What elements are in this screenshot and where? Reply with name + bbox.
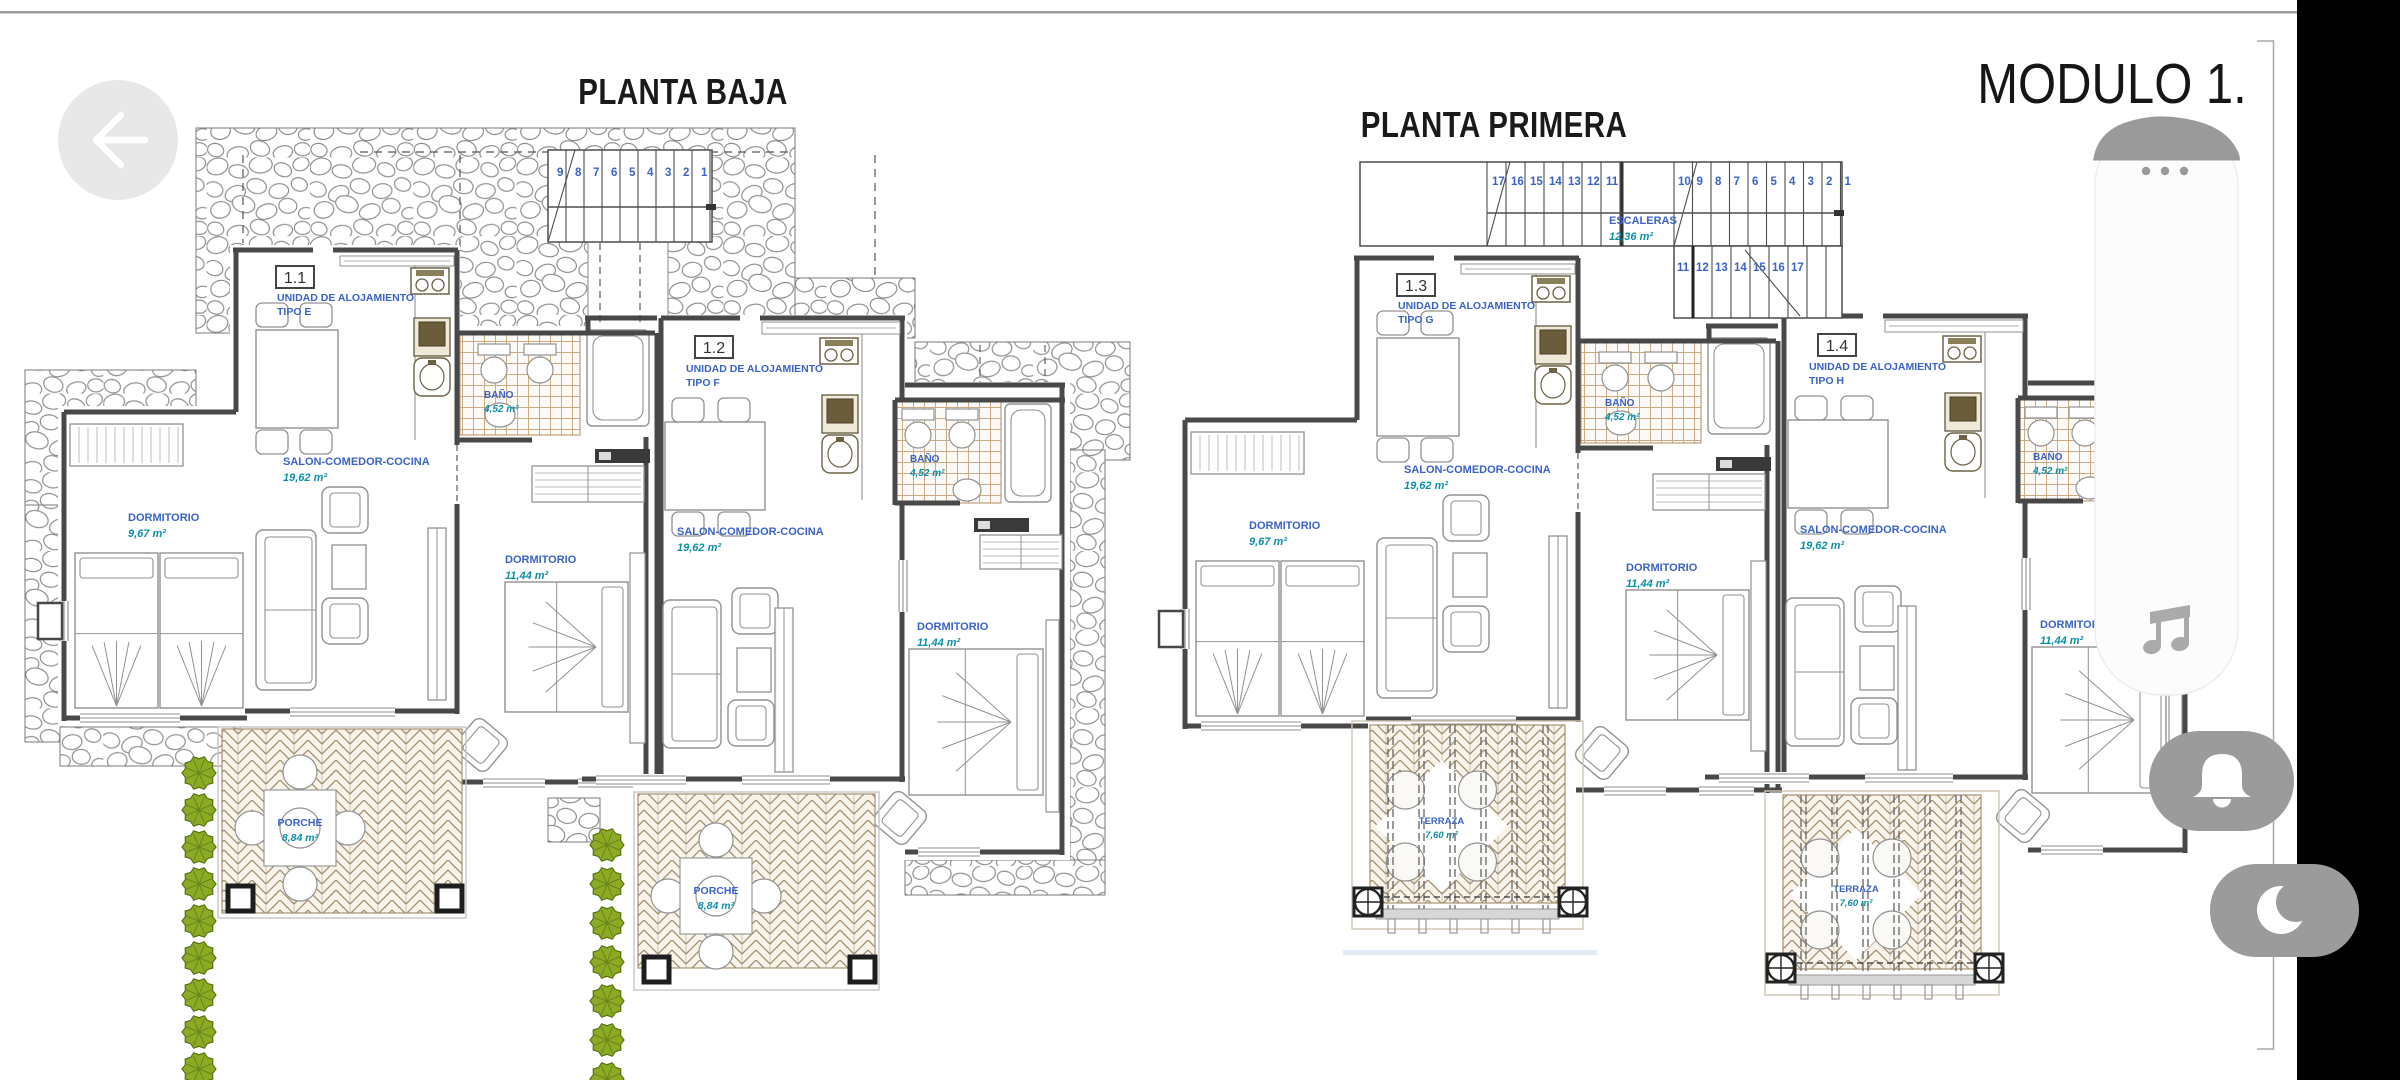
svg-text:1.4: 1.4 [1826,338,1848,355]
svg-text:6: 6 [611,167,617,179]
svg-text:BAÑO: BAÑO [910,452,940,465]
svg-text:4: 4 [1789,176,1796,188]
svg-text:SALON-COMEDOR-COCINA: SALON-COMEDOR-COCINA [677,526,824,538]
svg-text:DORMITORIO: DORMITORIO [1249,520,1321,532]
svg-text:8,84 m²: 8,84 m² [282,832,319,844]
svg-text:2: 2 [683,167,689,179]
svg-text:15: 15 [1753,262,1766,274]
svg-text:3: 3 [1808,176,1814,188]
svg-text:8,84 m²: 8,84 m² [698,900,735,912]
svg-text:UNIDAD DE ALOJAMIENTO: UNIDAD DE ALOJAMIENTO [1398,300,1535,312]
svg-text:11,44 m²: 11,44 m² [1626,578,1670,590]
svg-text:SALON-COMEDOR-COCINA: SALON-COMEDOR-COCINA [283,456,430,468]
svg-text:19,62 m²: 19,62 m² [1404,480,1448,492]
svg-text:19,62 m²: 19,62 m² [283,472,327,484]
svg-text:BAÑO: BAÑO [1605,396,1635,409]
svg-text:12: 12 [1696,262,1709,274]
svg-text:5: 5 [1771,176,1778,188]
svg-text:12: 12 [1587,176,1600,188]
svg-text:19,62 m²: 19,62 m² [677,542,721,554]
svg-text:8: 8 [1715,176,1722,188]
svg-text:1: 1 [1845,176,1852,188]
svg-text:8: 8 [575,167,582,179]
svg-text:14: 14 [1734,262,1747,274]
svg-text:11: 11 [1606,176,1619,188]
svg-text:PLANTA PRIMERA: PLANTA PRIMERA [1361,104,1627,144]
svg-text:11,44 m²: 11,44 m² [2040,635,2084,647]
svg-text:1.1: 1.1 [284,270,306,287]
svg-text:9: 9 [1697,176,1703,188]
svg-text:UNIDAD DE ALOJAMIENTO: UNIDAD DE ALOJAMIENTO [277,292,414,304]
svg-text:ESCALERAS: ESCALERAS [1609,215,1677,227]
svg-text:1.2: 1.2 [703,340,725,357]
svg-text:6: 6 [1752,176,1758,188]
svg-text:DORMITORIO: DORMITORIO [917,621,989,633]
svg-text:11: 11 [1677,262,1690,274]
svg-text:1: 1 [701,167,708,179]
svg-text:7,60 m²: 7,60 m² [1425,830,1459,841]
svg-text:10: 10 [1678,176,1691,188]
svg-text:UNIDAD DE ALOJAMIENTO: UNIDAD DE ALOJAMIENTO [1809,361,1946,373]
svg-text:4,52 m²: 4,52 m² [483,404,519,415]
svg-text:TERRAZA: TERRAZA [1419,816,1465,827]
svg-text:MODULO 1.: MODULO 1. [1977,53,2247,116]
svg-text:PORCHE: PORCHE [694,885,739,897]
svg-text:16: 16 [1511,176,1524,188]
svg-text:4: 4 [647,167,654,179]
svg-text:7: 7 [1734,176,1740,188]
svg-text:SALON-COMEDOR-COCINA: SALON-COMEDOR-COCINA [1800,524,1947,536]
svg-text:PORCHE: PORCHE [278,817,323,829]
svg-text:BAÑO: BAÑO [484,388,514,401]
svg-text:9: 9 [557,167,563,179]
svg-text:UNIDAD DE ALOJAMIENTO: UNIDAD DE ALOJAMIENTO [686,363,823,375]
svg-text:DORMITORIO: DORMITORIO [128,512,200,524]
svg-text:TIPO H: TIPO H [1809,375,1844,387]
svg-text:12,36 m²: 12,36 m² [1609,231,1653,243]
svg-text:13: 13 [1568,176,1581,188]
svg-text:16: 16 [1772,262,1785,274]
svg-text:4,52 m²: 4,52 m² [2032,466,2068,477]
svg-text:5: 5 [629,167,636,179]
svg-text:3: 3 [665,167,671,179]
svg-text:TIPO G: TIPO G [1398,314,1434,326]
svg-text:9,67 m²: 9,67 m² [1249,536,1287,548]
svg-text:11,44 m²: 11,44 m² [917,637,961,649]
svg-text:14: 14 [1549,176,1562,188]
svg-text:4,52 m²: 4,52 m² [1604,412,1640,423]
svg-text:PLANTA BAJA: PLANTA BAJA [578,71,787,111]
svg-text:17: 17 [1791,262,1804,274]
svg-text:BAÑO: BAÑO [2033,450,2063,463]
svg-text:13: 13 [1715,262,1728,274]
svg-text:DORMITORIO: DORMITORIO [505,554,577,566]
svg-text:17: 17 [1492,176,1505,188]
svg-text:TIPO E: TIPO E [277,306,311,318]
svg-text:TIPO F: TIPO F [686,377,720,389]
svg-text:1.3: 1.3 [1405,278,1427,295]
svg-text:4,52 m²: 4,52 m² [909,468,945,479]
svg-text:7: 7 [593,167,599,179]
svg-text:DORMITORIO: DORMITORIO [1626,562,1698,574]
svg-text:11,44 m²: 11,44 m² [505,570,549,582]
svg-text:15: 15 [1530,176,1543,188]
svg-text:9,67 m²: 9,67 m² [128,528,166,540]
svg-text:19,62 m²: 19,62 m² [1800,540,1844,552]
svg-text:SALON-COMEDOR-COCINA: SALON-COMEDOR-COCINA [1404,464,1551,476]
svg-text:2: 2 [1826,176,1832,188]
svg-text:TERRAZA: TERRAZA [1833,884,1879,895]
